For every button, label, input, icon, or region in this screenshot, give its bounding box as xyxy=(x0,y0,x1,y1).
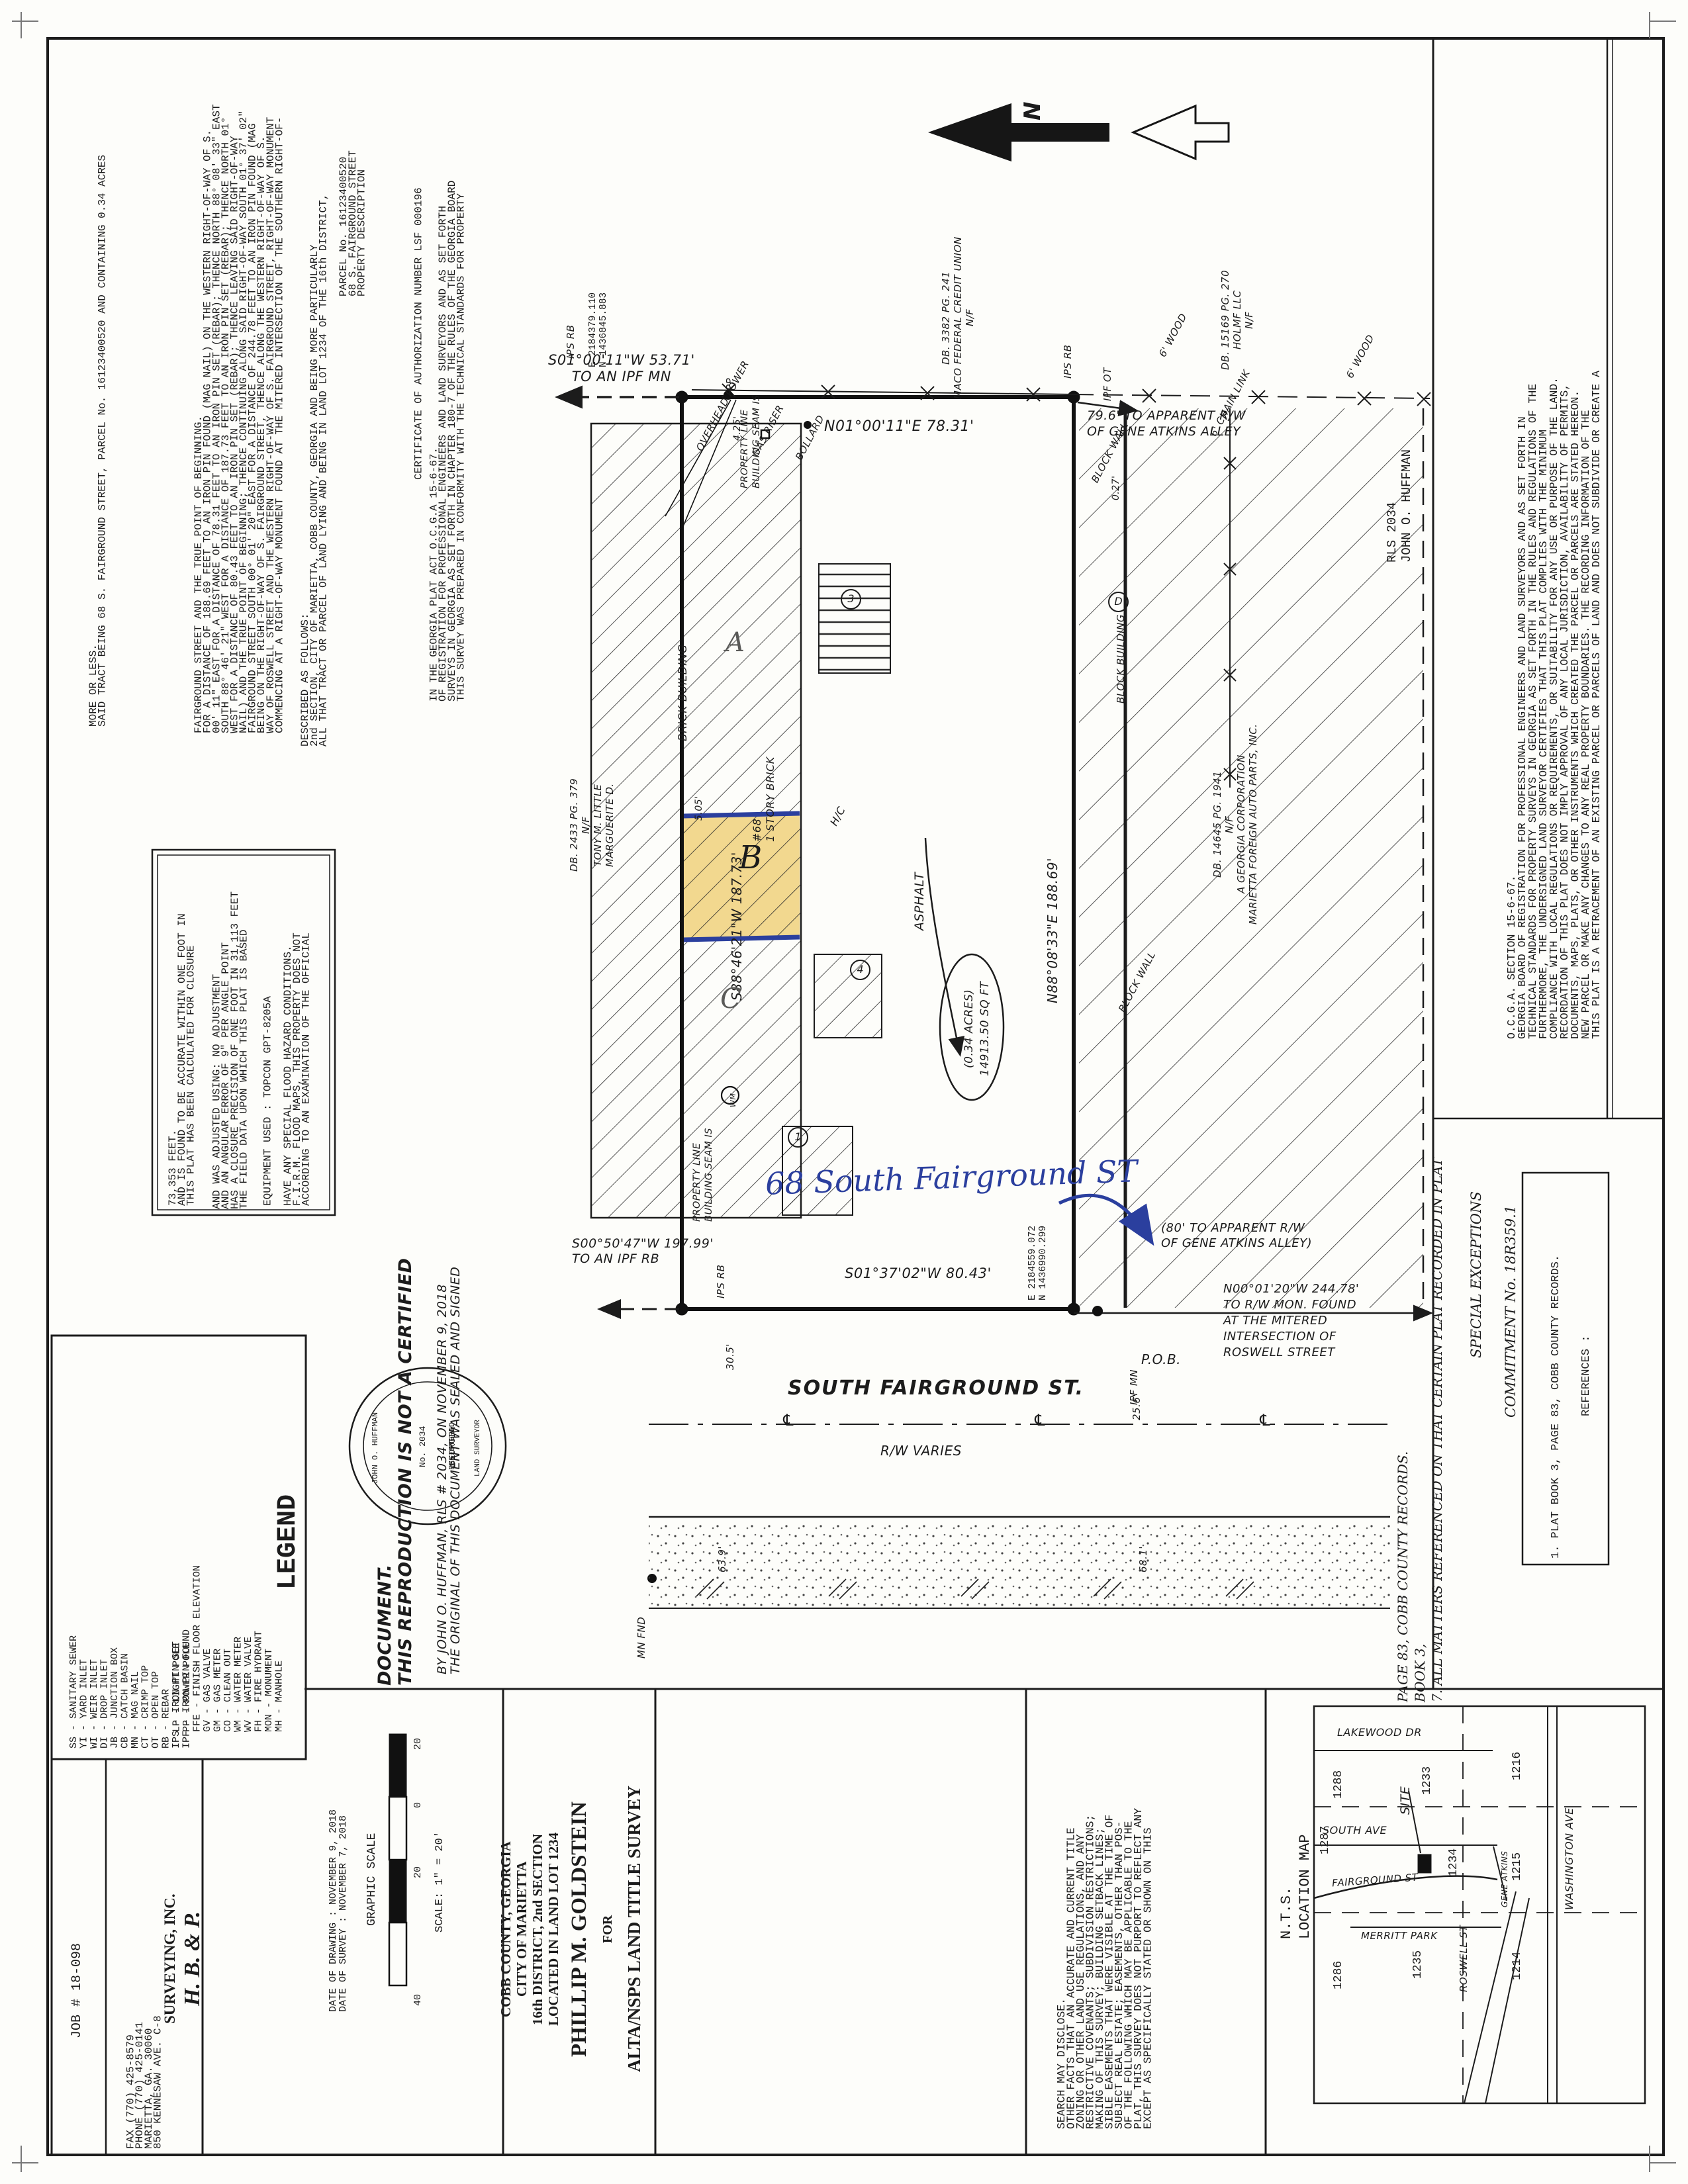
retracement-note: THIS PLAT IS A RETRACEMENT OF AN EXISTIN… xyxy=(1481,371,1602,1039)
dim-5-05: 5.05' xyxy=(690,772,704,821)
legend-item: WM - WATER METER xyxy=(234,1351,244,1732)
map-site-label: SITE xyxy=(1395,1755,1413,1815)
equipment-note: EQUIPMENT USED : TOPCON GPT-8205A xyxy=(258,862,273,1206)
property-description-intro: ALL THAT TRACT OR PARCEL OF LAND LYING A… xyxy=(297,98,328,747)
mn-found-label: MN FND xyxy=(629,1579,647,1659)
title-location: LOCATED IN LAND LOT 1234 16th DISTRICT, … xyxy=(506,1734,561,2124)
title-survey-type: ALTA/NSPS LAND TITLE SURVEY xyxy=(618,1721,645,2138)
location-map-lines xyxy=(1314,1706,1645,2103)
water-meter-label: WM xyxy=(723,1087,737,1107)
handwritten-letter-a: A xyxy=(726,627,745,658)
legend-item: GM - GAS METER xyxy=(213,1351,224,1732)
closure-note: THIS PLAT HAS BEEN CALCULATED FOR CLOSUR… xyxy=(163,862,196,1206)
land-lot-1286: 1286 xyxy=(1331,1943,1345,1989)
neighbor-holmf: N/F HOLMF LLC DB. 15169 PG. 270 xyxy=(1215,242,1255,398)
circled-number-3: 3 xyxy=(841,589,861,610)
rw-varies-label: R/W VARIES xyxy=(880,1443,962,1459)
pob-label: P.O.B. xyxy=(1141,1351,1181,1367)
land-lot-1215: 1215 xyxy=(1509,1835,1524,1881)
street-roswell: ROSWELL ST xyxy=(1455,1906,1470,1992)
property-description-body: COMMENCING AT A RIGHT-OF-WAY MONUMENT FO… xyxy=(136,98,285,733)
commitment-number: COMMITMENT No. 18R359.1 xyxy=(1489,1126,1519,1418)
land-lot-1216: 1216 xyxy=(1509,1734,1524,1780)
title-client-name: PHILLIP M. GOLDSTEIN xyxy=(561,1734,592,2124)
legend-column-2: IPF - IRON PIN FOUND IPS - IRON PIN SET … xyxy=(60,1351,192,1749)
legend-item: CB - CATCH BASIN xyxy=(120,1351,131,1749)
wood-fence-line xyxy=(692,384,1430,406)
legend-item: MON - MONUMENT xyxy=(264,1351,275,1732)
location-map-title: LOCATION MAP N.T.S. xyxy=(1272,1780,1315,1939)
legend-item: JB - JUNCTION BOX xyxy=(110,1351,120,1749)
seal-registered: REGISTERED xyxy=(445,1403,457,1489)
land-lot-1287: 1287 xyxy=(1317,1808,1332,1854)
building-seam-label-bottom: BUILDING SEAM IS PROPERTY LINE xyxy=(687,1096,715,1222)
scale-tick: 20 xyxy=(410,1848,424,1878)
land-lot-1234: 1234 xyxy=(1446,1831,1460,1877)
circled-number-4: 4 xyxy=(850,960,870,980)
street-lakewood: LAKEWOOD DR xyxy=(1337,1726,1422,1739)
legend-item: IPF - IRON PIN FOUND xyxy=(182,1351,193,1749)
legend-item: IPS - IRON PIN SET xyxy=(171,1351,182,1749)
flood-note: ACCORDING TO AN EXAMINATION OF THE OFFIC… xyxy=(278,862,311,1206)
dim-63-9: 63.9' xyxy=(714,1526,728,1572)
graphic-scale-bar xyxy=(389,1734,406,1985)
surveyor-name-label: JOHN O. HUFFMAN RLS 2034 xyxy=(1377,371,1414,563)
legend-item: DI - DROP INLET xyxy=(100,1351,111,1749)
legend-item: CT - CRIMP TOP xyxy=(141,1351,152,1749)
land-lot-1233: 1233 xyxy=(1419,1749,1434,1795)
legend-item: GV - GAS VALVE xyxy=(203,1351,213,1732)
alley-distance-bottom: (80' TO APPARENT R/W OF GENE ATKINS ALLE… xyxy=(1161,1220,1312,1251)
except-note: EXCEPT AS SPECIFICALLY STATED OR SHOWN O… xyxy=(1047,1702,1153,2129)
conformity-note: THIS SURVEY WAS PREPARED IN CONFORMITY W… xyxy=(425,93,466,702)
power-pole-label: PP xyxy=(720,360,736,390)
block-building-label: BLOCK BUILDING xyxy=(1108,548,1127,704)
centerline-symbol: ℄ xyxy=(1258,1411,1272,1430)
legend-item: RB - REBAR xyxy=(162,1351,172,1749)
south-tie-bearing: S00°50'47"W 197.99' TO AN IPF RB xyxy=(572,1236,714,1267)
legend-item: WI - WEIR INLET xyxy=(89,1351,100,1749)
special-exception-item: 7. ALL MATTERS REFERENCED ON THAT CERTAI… xyxy=(1409,1126,1446,1702)
street-gene-atkins: GENE ATKINS xyxy=(1497,1844,1509,1907)
seal-surveyor-title: LAND SURVEYOR xyxy=(471,1402,482,1494)
dim-0-27: 0.27' xyxy=(1107,459,1121,500)
centerline-symbol: ℄ xyxy=(781,1411,796,1430)
land-lot-1288: 1288 xyxy=(1331,1752,1345,1799)
street-south-ave: SOUTH AVE xyxy=(1323,1824,1387,1837)
centerline-symbol: ℄ xyxy=(1033,1411,1047,1430)
special-exceptions-title: SPECIAL EXCEPTIONS xyxy=(1459,1126,1484,1358)
scale-tick: 20 xyxy=(410,1719,424,1750)
parcel-area: 14913.50 SQ FT (0.34 ACRES) xyxy=(949,961,993,1097)
pob-symbol xyxy=(1092,1306,1103,1316)
circled-number-1: 1 xyxy=(788,1127,808,1148)
north-line-bearing: N88°08'33"E 188.69' xyxy=(1039,792,1060,1003)
street-merritt-park: MERRITT PARK xyxy=(1361,1930,1438,1942)
ips-rb-label-sw: IPS RB xyxy=(708,1219,727,1298)
legend-item: WV - WATER VALVE xyxy=(244,1351,254,1732)
corner-coordinates-nw: N 1436845.883 E 2184379.110 xyxy=(581,238,609,367)
brick-building-label: BRICK BUILDING xyxy=(670,615,690,741)
neighbor-little: MARGUERITE D. TONY M. LITTLE N/F DB. 243… xyxy=(564,724,616,926)
dim-30-5: 30.5' xyxy=(722,1324,736,1370)
dim-25-6: 25.6' xyxy=(1128,1374,1143,1420)
job-number: JOB # 18-098 xyxy=(68,1880,85,2038)
graphic-scale-title: GRAPHIC SCALE xyxy=(361,1780,379,1926)
legend-item: FFE - FINISH FLOOR ELEVATION xyxy=(193,1351,203,1732)
circled-letter-d: D xyxy=(1108,592,1129,612)
dim-4-25: 4.25' xyxy=(728,397,743,441)
ips-rb-label-ne: IPS RB xyxy=(1055,299,1074,379)
scale-tick: 40 xyxy=(410,1976,424,2006)
legend-item: OT - OPEN TOP xyxy=(151,1351,162,1749)
legend-item: CO - CLEAN OUT xyxy=(223,1351,234,1732)
property-description-heading: PROPERTY DESCRIPTION 68 S. FAIRGROUND ST… xyxy=(335,98,367,296)
ips-rb-label-nw: IPS RB xyxy=(558,279,577,359)
land-lot-1214: 1214 xyxy=(1509,1934,1524,1980)
firm-address: 850 KENNESAW AVE. C-8 MARIETTA, GA. 3006… xyxy=(122,1768,163,2149)
north-arrow xyxy=(928,103,1229,161)
legend-item: MH - MANHOLE xyxy=(275,1351,285,1732)
seal-number: No. 2034 xyxy=(416,1414,428,1480)
ipf-ot-label: IPF OT xyxy=(1095,330,1113,401)
title-for: FOR xyxy=(597,1906,616,1952)
legend-item: YI - YARD INLET xyxy=(79,1351,90,1749)
north-label: N xyxy=(1019,74,1046,120)
one-story-label: 1 STORY BRICK #68 xyxy=(747,716,777,842)
field-data-note: THE FIELD DATA UPON WHICH THIS PLAT IS B… xyxy=(207,862,249,1209)
handwritten-letter-b: B xyxy=(739,839,762,876)
certificate-of-authorization: CERTIFICATE OF AUTHORIZATION NUMBER LSF … xyxy=(408,96,424,480)
dim-68-1: 68.1' xyxy=(1135,1526,1149,1572)
neighbor-maco: N/F MACO FEDERAL CREDIT UNION DB. 3382 P… xyxy=(936,232,976,404)
legend-item: SS - SANITARY SEWER xyxy=(69,1351,79,1749)
asphalt-label: ASPHALT xyxy=(908,778,927,931)
street-name-label: SOUTH FAIRGROUND ST. xyxy=(788,1377,1084,1400)
scale-ratio: SCALE: 1" = 20' xyxy=(429,1780,446,1933)
scale-tick: 0 xyxy=(410,1788,424,1808)
property-description-closing: SAID TRACT BEING 68 S. FAIRGROUND STREET… xyxy=(83,98,107,727)
firm-name: H. B. & P. xyxy=(177,1774,205,2144)
survey-plat-sheet: THIS SURVEY WAS PREPARED IN CONFORMITY W… xyxy=(0,0,1688,2184)
references-title: REFERENCES : xyxy=(1573,1284,1593,1416)
land-lot-1235: 1235 xyxy=(1410,1933,1425,1979)
seal-surveyor-name: JOHN O. HUFFMAN xyxy=(368,1395,380,1501)
legend-item: MN - MAG NAIL xyxy=(130,1351,141,1749)
survey-dates: DATE OF SURVEY : NOVEMBER 7, 2018 DATE O… xyxy=(326,1707,348,2012)
street-washington: WASHINGTON AVE xyxy=(1560,1711,1575,1910)
east-line-bearing: S01°37'02"W 80.43' xyxy=(845,1265,992,1281)
neighbor-marietta-foreign: MARIETTA FOREIGN AUTO PARTS, INC. A GEOR… xyxy=(1207,694,1259,955)
legend-item: FH - FIRE HYDRANT xyxy=(254,1351,265,1732)
handwritten-letter-c: C xyxy=(720,982,741,1015)
south-line-bearing: S88°46'21"W 187.73' xyxy=(724,789,745,1001)
street-lines xyxy=(649,1424,1390,1608)
west-line-bearing: N01°00'11"E 78.31' xyxy=(824,418,974,435)
rw-monument-note: N00°01'20"W 244.78' TO R/W MON. FOUND AT… xyxy=(1223,1281,1359,1361)
reference-item: 1. PLAT BOOK 3, PAGE 83, COBB COUNTY REC… xyxy=(1542,1185,1562,1559)
